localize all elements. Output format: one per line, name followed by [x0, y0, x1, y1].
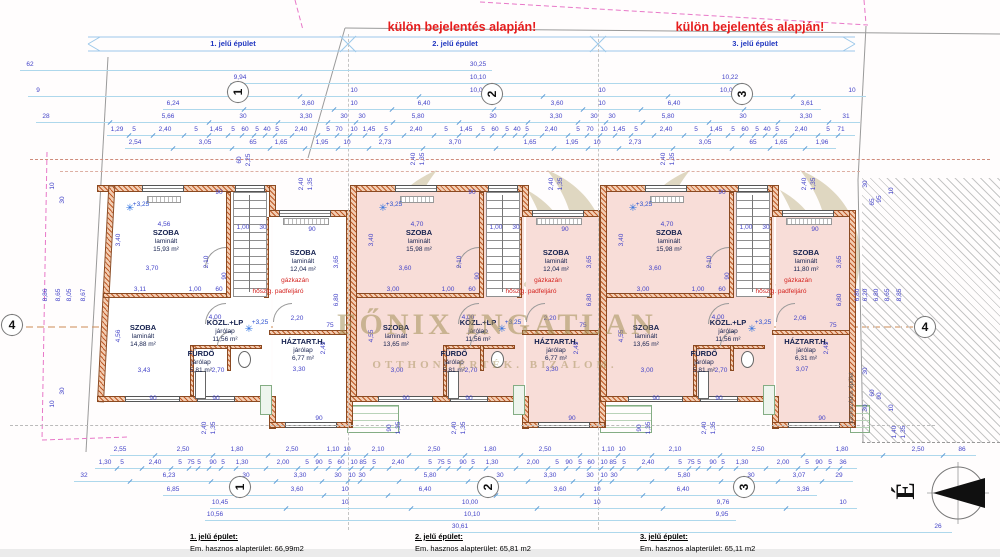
- window: [235, 185, 265, 192]
- marker-number: 2: [477, 476, 499, 498]
- room-name: SZOBA: [406, 228, 432, 238]
- dimension-label-vertical: 2,40: [411, 153, 418, 166]
- dimension-label: 10: [350, 101, 357, 108]
- window: [279, 210, 331, 217]
- dimension-label: 1,30: [486, 460, 499, 467]
- level-label: +3,25: [636, 201, 652, 208]
- dimension-label-vertical: 1,35: [420, 153, 427, 166]
- section-marker-1: 1: [227, 81, 249, 103]
- dimension-label: 3,70: [146, 266, 159, 273]
- dimension-label-vertical: 1,35: [308, 178, 315, 191]
- window: [488, 185, 518, 192]
- exterior-step-strip: [763, 385, 775, 415]
- dimension-label: 5: [828, 460, 832, 467]
- wall: [606, 293, 733, 298]
- dimension-label-vertical: 6,20: [863, 289, 870, 302]
- dimension-label: 2,50: [177, 447, 190, 454]
- dimension-label: 2,10: [669, 447, 682, 454]
- wall: [226, 192, 231, 298]
- room-floor: laminált: [656, 238, 682, 246]
- room-area: 11,80 m²: [793, 266, 819, 274]
- dimension-label: 5: [694, 127, 698, 134]
- dimension-label: 5,80: [678, 473, 691, 480]
- dimension-label: 10: [600, 127, 607, 134]
- dimension-label: 60: [337, 460, 344, 467]
- dimension-label-vertical: 90: [222, 272, 229, 279]
- neighbor-plot-hatch: [862, 178, 1000, 443]
- dimension-label: 90: [568, 416, 575, 423]
- dimension-label: 2,00: [777, 460, 790, 467]
- wall: [350, 396, 528, 402]
- dimension-label: 1,30: [236, 460, 249, 467]
- separate-permit-title: külön bejelentés alapján!: [676, 20, 825, 34]
- dimension-label: 1,80: [484, 447, 497, 454]
- room-area: 12,04 m²: [543, 266, 569, 274]
- dimension-label: 60: [491, 127, 498, 134]
- dimension-label: 2,40: [410, 127, 423, 134]
- dimension-line: [205, 520, 736, 521]
- dimension-label: 1,45: [210, 127, 223, 134]
- marker-number: 3: [733, 476, 755, 498]
- dimension-label: 1,00: [740, 225, 753, 232]
- wall: [356, 293, 483, 298]
- dimension-label-vertical: 1,35: [211, 422, 218, 435]
- dimension-label: 60: [468, 287, 475, 294]
- dimension-label: 70: [335, 127, 342, 134]
- room-label-furdo: FÜRDŐjárólap5,81 m²: [188, 349, 215, 376]
- dimension-label-vertical: 2,10: [707, 256, 714, 269]
- dimension-label: 10,56: [207, 512, 223, 519]
- dimension-label: 5: [255, 127, 259, 134]
- dimension-label: 1,96: [816, 140, 829, 147]
- dimension-label: 2,50: [539, 447, 552, 454]
- dimension-label: 90: [815, 460, 822, 467]
- dimension-label-vertical: 10: [50, 182, 57, 189]
- dimension-label: 3,00: [387, 287, 400, 294]
- dimension-label: 10: [350, 88, 357, 95]
- staircase: [486, 192, 520, 297]
- dimension-label: 60: [718, 287, 725, 294]
- room-area: 11,56 m²: [207, 336, 243, 344]
- axis-band-label: 3. jelű épület: [729, 39, 780, 48]
- dimension-label-vertical: 90: [387, 424, 394, 431]
- dimension-label-vertical: 10: [889, 187, 896, 194]
- dimension-label-vertical: 3,65: [334, 256, 341, 269]
- dimension-label: 65: [749, 140, 756, 147]
- dimension-label: 2,55: [114, 447, 127, 454]
- marker-number: 1: [229, 476, 251, 498]
- window: [395, 185, 437, 192]
- dimension-label-vertical: 3,40: [369, 234, 376, 247]
- dimension-label: 6,24: [167, 101, 180, 108]
- footer-building-summary: 3. jelű épület:Em. hasznos alapterület: …: [640, 531, 755, 554]
- dimension-label-vertical: 6,80: [587, 294, 594, 307]
- dimension-label-vertical: 8,65: [56, 289, 63, 302]
- dimension-label: 40: [513, 127, 520, 134]
- axis-band-label: 2. jelű épület: [429, 39, 480, 48]
- dimension-label: 3,30: [800, 114, 813, 121]
- dimension-label: 2,40: [642, 460, 655, 467]
- dimension-label: 85: [359, 460, 366, 467]
- dimension-label: 3,07: [796, 367, 809, 374]
- dimension-label: 2,40: [392, 460, 405, 467]
- dimension-label: 60: [741, 127, 748, 134]
- room-floor: laminált: [130, 333, 156, 341]
- survey-star-icon: ✳: [126, 204, 134, 214]
- dimension-label: 9: [36, 88, 40, 95]
- dimension-label: 5: [555, 460, 559, 467]
- dimension-label: 1,10: [327, 447, 340, 454]
- dimension-label: 2,10: [372, 447, 385, 454]
- watermark-tagline: OTTHON. ÉRTÉK. BIZALOM.: [372, 359, 617, 371]
- wall: [600, 396, 778, 402]
- dimension-label: 30: [590, 114, 597, 121]
- dimension-label: 1,45: [613, 127, 626, 134]
- dimension-label-vertical: 4,56: [116, 330, 123, 343]
- dimension-label: 90: [465, 396, 472, 403]
- dimension-label: 65: [249, 140, 256, 147]
- dimension-label: 5: [178, 460, 182, 467]
- dimension-label: 90: [565, 460, 572, 467]
- dimension-label: 6,23: [163, 473, 176, 480]
- dimension-label: 1,29: [111, 127, 124, 134]
- room-floor: járólap: [281, 347, 325, 355]
- dimension-label: 10,00: [462, 500, 478, 507]
- dimension-label: 1,95: [566, 140, 579, 147]
- dimension-label: 1,00: [692, 287, 705, 294]
- dimension-label: 5: [576, 127, 580, 134]
- dimension-label: 90: [818, 416, 825, 423]
- dimension-label-vertical: 2,10: [457, 256, 464, 269]
- room-label-haztart: HÁZTART.H.járólap6,31 m²: [784, 337, 828, 364]
- dimension-label: 86: [958, 447, 965, 454]
- dimension-label: 6,85: [167, 487, 180, 494]
- room-label-kozl: KÖZL.+LPjárólap11,56 m²: [207, 318, 243, 345]
- dimension-label-vertical: 1,35: [711, 422, 718, 435]
- dimension-label-vertical: 3,40: [619, 234, 626, 247]
- dimension-label: 10: [593, 140, 600, 147]
- dimension-label: 5,80: [412, 114, 425, 121]
- room-label-bl: SZOBAlaminált14,88 m²: [130, 323, 156, 350]
- dimension-line: [210, 508, 857, 509]
- dimension-label-vertical: 30: [60, 196, 67, 203]
- dimension-label-vertical: 90: [475, 272, 482, 279]
- room-area: 11,56 m²: [710, 336, 746, 344]
- dimension-label: 90: [811, 227, 818, 234]
- dimension-label-vertical: 2,40: [549, 178, 556, 191]
- dimension-label: 10: [598, 88, 605, 95]
- dimension-label: 90: [718, 190, 725, 197]
- wall: [479, 192, 484, 298]
- dimension-label: 10: [593, 500, 600, 507]
- dimension-label-vertical: 8,86: [43, 289, 50, 302]
- dimension-label: 90: [315, 416, 322, 423]
- marker-number: 4: [1, 314, 23, 336]
- dimension-label: 3,36: [797, 487, 810, 494]
- dimension-label-vertical: 1,35: [901, 426, 908, 439]
- dimension-label: 3,30: [550, 114, 563, 121]
- dimension-label: 5: [481, 127, 485, 134]
- footer-building-title: 3. jelű épület:: [640, 531, 755, 543]
- room-floor: laminált: [793, 258, 819, 266]
- survey-star-icon: ✳: [245, 325, 253, 335]
- eaves-dashed-line-lower: [60, 171, 860, 172]
- room-area: 15,93 m²: [153, 246, 179, 254]
- dimension-label: 2,40: [295, 127, 308, 134]
- dimension-label-vertical: 8,05: [67, 289, 74, 302]
- dimension-label: 1,45: [710, 127, 723, 134]
- dimension-label: 60: [215, 287, 222, 294]
- dimension-label-vertical: 2,40: [661, 153, 668, 166]
- attic-hatch-note: hőszig. padfeljáró: [253, 288, 304, 295]
- dimension-label: 5: [505, 127, 509, 134]
- room-area: 6,77 m²: [281, 355, 325, 363]
- dimension-label: 30,25: [470, 62, 486, 69]
- gas-boiler-note: gázkazán: [281, 277, 309, 284]
- room-name: SZOBA: [290, 248, 316, 258]
- dimension-label-vertical: 90: [877, 392, 884, 399]
- dimension-label: 5: [471, 460, 475, 467]
- wall: [103, 293, 230, 298]
- window: [645, 185, 687, 192]
- section-marker-1: 1: [229, 476, 251, 498]
- wall: [227, 345, 231, 371]
- dimension-label: 5: [231, 127, 235, 134]
- dimension-label: 10: [350, 460, 357, 467]
- room-area: 13,65 m²: [633, 341, 659, 349]
- survey-star-icon: ✳: [379, 204, 387, 214]
- dimension-label-vertical: 1,35: [646, 422, 653, 435]
- attic-hatch-note: hőszig. padfeljáró: [506, 288, 557, 295]
- dimension-label: 26: [934, 524, 941, 531]
- room-floor: laminált: [406, 238, 432, 246]
- dimension-label-vertical: 60: [237, 156, 244, 163]
- dimension-label: 5: [197, 460, 201, 467]
- dimension-label: 5: [755, 127, 759, 134]
- wc-fixture: [741, 351, 754, 368]
- dimension-label: 3,07: [793, 473, 806, 480]
- room-floor: laminált: [543, 258, 569, 266]
- dimension-label: 10: [618, 447, 625, 454]
- dimension-label-vertical: 6,80: [874, 289, 881, 302]
- room-area: 15,98 m²: [406, 246, 432, 254]
- dimension-label: 10: [348, 473, 355, 480]
- watermark-title: FŐNIX INGATLAN: [337, 308, 657, 342]
- dimension-label: 10: [343, 447, 350, 454]
- dimension-label: 10,22: [722, 75, 738, 82]
- dimension-label: 5: [132, 127, 136, 134]
- room-floor: járólap: [691, 359, 718, 367]
- dimension-label-vertical: 8,65: [885, 289, 892, 302]
- dimension-label: 10: [839, 500, 846, 507]
- dimension-label: 1,65: [775, 140, 788, 147]
- dimension-label: 6,40: [419, 487, 432, 494]
- dimension-label: 30,61: [452, 524, 468, 531]
- marker-number: 2: [481, 83, 503, 105]
- level-label: +3,25: [755, 319, 771, 326]
- dimension-label: 5: [326, 127, 330, 134]
- room-name: HÁZTART.H.: [784, 337, 828, 347]
- dimension-label-vertical: 30: [863, 404, 870, 411]
- wall: [729, 192, 734, 298]
- survey-star-icon: ✳: [748, 325, 756, 335]
- dimension-label: 30: [340, 114, 347, 121]
- north-label: É: [891, 482, 921, 499]
- survey-star-icon: ✳: [629, 204, 637, 214]
- footer-building-area: Em. hasznos alapterület: 66,99m2: [190, 543, 304, 555]
- room-label-haztart: HÁZTART.H.járólap6,77 m²: [281, 337, 325, 364]
- dimension-label: 5: [444, 127, 448, 134]
- dimension-label: 75: [829, 323, 836, 330]
- wall: [97, 396, 275, 402]
- dimension-label: 6,40: [418, 101, 431, 108]
- dimension-label: 1,10: [602, 447, 615, 454]
- dimension-label: 2,40: [545, 127, 558, 134]
- dimension-label: 3,00: [641, 368, 654, 375]
- dimension-label: 10: [598, 101, 605, 108]
- dimension-label: 5: [384, 127, 388, 134]
- north-compass-icon: [927, 462, 989, 524]
- radiator: [283, 218, 329, 225]
- stair-walk-line: [249, 195, 250, 292]
- dimension-label: 3,60: [554, 487, 567, 494]
- attic-hatch-note: hőszig. padfeljáró: [756, 288, 807, 295]
- dimension-label: 1,30: [736, 460, 749, 467]
- dimension-label: 5: [805, 460, 809, 467]
- dimension-label: 3,30: [294, 473, 307, 480]
- dimension-label: 1,00: [442, 287, 455, 294]
- room-floor: laminált: [290, 258, 316, 266]
- dimension-label-vertical: 30: [863, 367, 870, 374]
- dimension-label-vertical: 3,65: [837, 256, 844, 269]
- stair-walk-line: [502, 195, 503, 292]
- dimension-label-vertical: 2,40: [299, 178, 306, 191]
- room-floor: járólap: [188, 359, 215, 367]
- dimension-label: 30: [512, 225, 519, 232]
- window: [532, 210, 584, 217]
- staircase: [736, 192, 770, 297]
- dimension-label: 90: [212, 396, 219, 403]
- dimension-label: 90: [709, 460, 716, 467]
- dimension-label: 90: [315, 460, 322, 467]
- dimension-label-vertical: 8,85: [897, 289, 904, 302]
- dimension-label: 5: [275, 127, 279, 134]
- dimension-label: 40: [263, 127, 270, 134]
- dimension-label: 3,61: [801, 101, 814, 108]
- dimension-label: 1,00: [189, 287, 202, 294]
- room-name: SZOBA: [793, 248, 819, 258]
- dimension-label: 3,60: [551, 101, 564, 108]
- dimension-label: 9,95: [716, 512, 729, 519]
- dimension-label: 5: [194, 127, 198, 134]
- dimension-label: 62: [26, 62, 33, 69]
- wall: [772, 330, 850, 335]
- room-floor: járólap: [710, 328, 746, 336]
- dimension-label: 3,30: [293, 367, 306, 374]
- dimension-label: 1,00: [237, 225, 250, 232]
- dimension-label-vertical: 2,40: [802, 178, 809, 191]
- dimension-label-vertical: 1,40: [892, 426, 899, 439]
- room-name: SZOBA: [656, 228, 682, 238]
- wall: [269, 330, 347, 335]
- dimension-label: 10,45: [212, 500, 228, 507]
- dimension-label: 3,30: [300, 114, 313, 121]
- room-name: FÜRDŐ: [188, 349, 215, 359]
- dimension-label: 90: [468, 190, 475, 197]
- dimension-label: 28: [42, 114, 49, 121]
- dimension-label-vertical: 2,10: [204, 256, 211, 269]
- room-name: KÖZL.+LP: [710, 318, 746, 328]
- section-marker-4: 4: [1, 314, 23, 336]
- dimension-label-vertical: 30: [60, 387, 67, 394]
- wc-fixture: [238, 351, 251, 368]
- dimension-label: 71: [837, 127, 844, 134]
- section-marker-2: 2: [481, 83, 503, 105]
- dimension-label: 30: [610, 473, 617, 480]
- dimension-label: 90: [561, 227, 568, 234]
- dimension-label-vertical: 1,35: [461, 422, 468, 435]
- floor-plan-canvas: FŐNIX INGATLAN OTTHON. ÉRTÉK. BIZALOM. É…: [0, 0, 1000, 557]
- dimension-label: 30: [489, 114, 496, 121]
- section-marker-4: 4: [914, 316, 936, 338]
- dimension-label: 60: [241, 127, 248, 134]
- dimension-label-vertical: 90: [637, 424, 644, 431]
- dimension-label: 10: [341, 487, 348, 494]
- dimension-label: 30: [739, 114, 746, 121]
- dimension-label: 30: [586, 473, 593, 480]
- dimension-label: 3,60: [649, 266, 662, 273]
- room-label-r: SZOBAlaminált11,80 m²: [793, 248, 819, 275]
- dimension-label: 5: [731, 127, 735, 134]
- dimension-label: 70: [586, 127, 593, 134]
- stair-walk-line: [752, 195, 753, 292]
- dimension-line: [36, 122, 860, 123]
- dimension-label: 10: [593, 487, 600, 494]
- dimension-label: 2,40: [660, 127, 673, 134]
- radiator: [400, 196, 434, 203]
- dimension-label: 2,50: [752, 447, 765, 454]
- dimension-label: 1,45: [460, 127, 473, 134]
- dimension-label-vertical: 1,35: [558, 178, 565, 191]
- dimension-label: 5: [221, 460, 225, 467]
- marker-number: 3: [731, 83, 753, 105]
- dimension-label: 5: [578, 460, 582, 467]
- exterior-step-strip: [260, 385, 272, 415]
- wall: [730, 345, 734, 371]
- dimension-label: 5: [775, 127, 779, 134]
- dimension-label: 5: [372, 460, 376, 467]
- dimension-label: 2,00: [277, 460, 290, 467]
- dimension-label: 10: [341, 500, 348, 507]
- dimension-label-vertical: 6,80: [837, 294, 844, 307]
- dimension-label-vertical: 1,35: [396, 422, 403, 435]
- level-label: +3,25: [252, 319, 268, 326]
- room-area: 6,31 m²: [784, 355, 828, 363]
- room-name: HÁZTART.H.: [281, 337, 325, 347]
- dimension-label: 90: [402, 396, 409, 403]
- dimension-label: 10,10: [470, 75, 486, 82]
- window: [142, 185, 184, 192]
- dimension-label: 5: [428, 460, 432, 467]
- dimension-label: 3,60: [399, 266, 412, 273]
- dimension-label: 36: [839, 460, 846, 467]
- dimension-label: 1,45: [363, 127, 376, 134]
- room-area: 15,98 m²: [656, 246, 682, 254]
- dimension-label: 90: [149, 396, 156, 403]
- dimension-label-vertical: 10: [889, 404, 896, 411]
- dimension-label: 2,40: [795, 127, 808, 134]
- room-name: SZOBA: [153, 228, 179, 238]
